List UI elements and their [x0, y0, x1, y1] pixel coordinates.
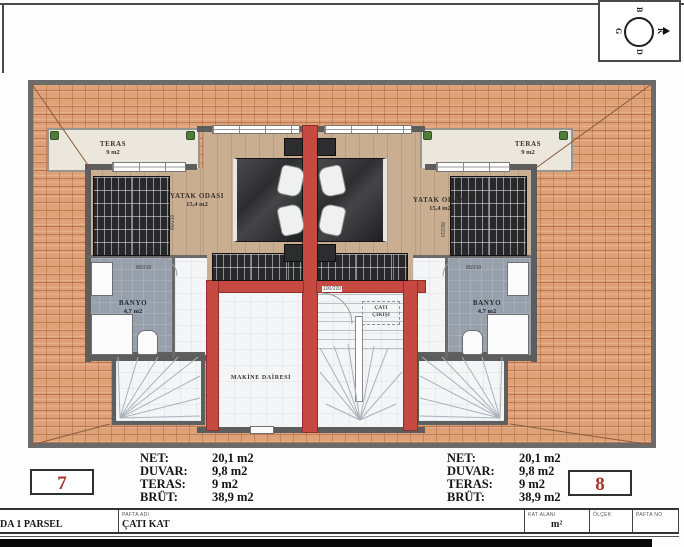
wall: [85, 355, 212, 361]
pillow: [317, 203, 347, 237]
shower: [91, 314, 133, 355]
machine-room-label: MAKİNE DAİRESİ: [211, 375, 311, 383]
wardrobe: [93, 176, 170, 256]
pillow: [276, 164, 306, 198]
divider-line: [0, 536, 679, 537]
bathroom-left-label: BANYO 4,7 m2: [93, 299, 173, 316]
compass-rose-icon: K D G B: [612, 3, 668, 59]
door-size-label: 80/210: [170, 215, 176, 230]
pillow: [276, 203, 306, 237]
wall: [408, 355, 537, 361]
window: [436, 162, 510, 172]
nightstand: [284, 244, 303, 262]
stair-left: [112, 352, 205, 425]
terrace-left-label: TERAS 9 m2: [63, 140, 163, 157]
red-wall: [404, 281, 417, 430]
red-wall: [207, 281, 218, 430]
compass: K D G B: [598, 0, 681, 62]
shower: [487, 314, 529, 355]
compass-letter-east: D: [635, 49, 644, 55]
door-size-label: 80/210: [439, 222, 445, 237]
legend-row: BRÜT:38,9 m2: [140, 491, 350, 504]
roof-exit-label: ÇATI ÇIKIŞI: [362, 301, 400, 325]
terrace-right-label: TERAS 9 m2: [478, 140, 578, 157]
frame-left-line: [2, 3, 4, 73]
toilet: [462, 330, 483, 355]
red-wall: [207, 281, 303, 292]
bed-right: [317, 158, 387, 242]
title-block-cell-pafta-no: PAFTA NO: [632, 510, 680, 532]
pillow: [317, 164, 347, 198]
door-size-label: 80/210: [136, 265, 151, 271]
title-block-cell-kat-alani: KAT ALANI m²: [524, 510, 590, 532]
door-size-label: 80/210: [466, 265, 481, 271]
toilet: [137, 330, 158, 355]
bathroom-right-label: BANYO 4,7 m2: [447, 299, 527, 316]
bottom-black-bar: [0, 539, 652, 547]
door-size-label: 100/220: [322, 286, 342, 292]
window: [112, 162, 186, 172]
title-block-cell-parcel: DA 1 PARSEL: [0, 510, 118, 532]
hall-right-floor: [413, 258, 445, 358]
nightstand: [317, 244, 336, 262]
machine-room-floor: [218, 292, 303, 430]
floor-plan-sheet: K D G B: [0, 0, 684, 547]
plant-icon: [50, 131, 59, 140]
frame-top-line: [0, 3, 684, 5]
hall-left-floor: [175, 258, 207, 358]
unit-number-right: 8: [568, 470, 632, 496]
nightstand: [284, 138, 303, 156]
title-block-cell-olcek: ÖLÇEK: [589, 510, 633, 532]
stair-right: [415, 352, 508, 425]
bedroom-left-label: YATAK ODASI 15,4 m2: [147, 192, 247, 209]
bedroom-right-label: YATAK ODASI 15,4 m2: [390, 196, 490, 213]
title-block-cell-pafta-adi: PAFTA ADI ÇATI KAT: [118, 510, 525, 532]
sink: [507, 262, 529, 296]
legend-left: NET:20,1 m2 DUVAR:9,8 m2 TERAS:9 m2 BRÜT…: [140, 452, 350, 504]
window: [324, 125, 412, 134]
sink: [91, 262, 113, 296]
plant-icon: [186, 131, 195, 140]
red-party-wall: [303, 126, 317, 432]
title-block: DA 1 PARSEL PAFTA ADI ÇATI KAT KAT ALANI…: [0, 508, 679, 534]
unit-number-left: 7: [30, 469, 94, 495]
nightstand: [317, 138, 336, 156]
plant-icon: [559, 131, 568, 140]
parcel-text: DA 1 PARSEL: [0, 519, 63, 530]
wall: [531, 164, 537, 362]
compass-letter-south: G: [614, 28, 623, 34]
machine-room-door: [250, 426, 274, 434]
stair-rail: [355, 316, 363, 402]
compass-letter-north: K: [656, 28, 665, 34]
window: [212, 125, 300, 134]
plant-icon: [423, 131, 432, 140]
compass-letter-west: B: [635, 7, 644, 12]
wardrobe: [450, 176, 527, 256]
